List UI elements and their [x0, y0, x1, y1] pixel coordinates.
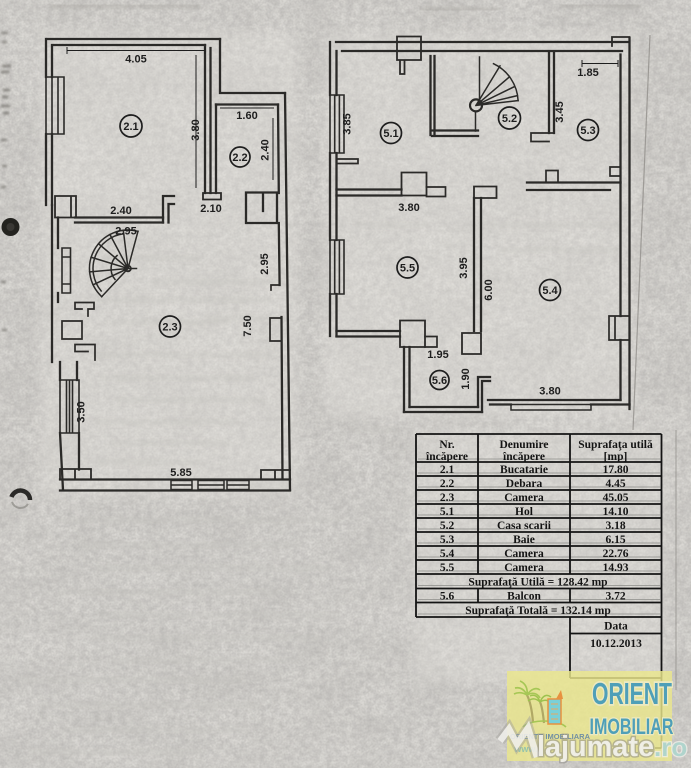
svg-text:Data: Data: [604, 621, 628, 633]
svg-text:Suprafaţă Totală = 132.14 mp: Suprafaţă Totală = 132.14 mp: [465, 605, 611, 617]
svg-text:3.85: 3.85: [342, 113, 354, 134]
svg-text:Suprafaţa utilă: Suprafaţa utilă: [578, 439, 653, 451]
svg-text:lajumate: lajumate: [537, 731, 654, 763]
svg-text:[mp]: [mp]: [604, 451, 628, 463]
svg-text:2.3: 2.3: [162, 321, 177, 333]
svg-text:14.10: 14.10: [603, 506, 629, 518]
svg-text:încăpere: încăpere: [502, 451, 545, 463]
svg-text:Bucatarie: Bucatarie: [500, 464, 548, 476]
svg-text:1.95: 1.95: [427, 349, 448, 361]
svg-text:1.60: 1.60: [236, 110, 257, 122]
svg-text:2.1: 2.1: [440, 464, 455, 476]
svg-text:3.50: 3.50: [76, 401, 88, 422]
svg-text:4.05: 4.05: [125, 54, 146, 66]
svg-text:1.90: 1.90: [460, 368, 472, 389]
svg-text:2.95: 2.95: [259, 253, 271, 274]
svg-text:3.80: 3.80: [398, 202, 419, 214]
svg-text:2.40: 2.40: [260, 139, 272, 160]
svg-text:2.2: 2.2: [440, 478, 455, 490]
svg-text:Suprafaţă Utilă = 128.42 mp: Suprafaţă Utilă = 128.42 mp: [468, 576, 607, 588]
svg-text:5.6: 5.6: [440, 590, 455, 602]
svg-text:2.1: 2.1: [123, 121, 138, 133]
svg-text:45.05: 45.05: [603, 492, 629, 504]
svg-text:Camera: Camera: [504, 548, 544, 560]
svg-text:3.80: 3.80: [190, 119, 202, 140]
svg-text:Balcon: Balcon: [507, 590, 541, 602]
svg-text:2.10: 2.10: [200, 203, 221, 215]
svg-text:Camera: Camera: [504, 492, 544, 504]
svg-text:4.45: 4.45: [605, 478, 625, 490]
svg-text:7.50: 7.50: [242, 315, 254, 336]
svg-text:Camera: Camera: [504, 562, 544, 574]
svg-text:5.2: 5.2: [502, 113, 517, 125]
svg-text:încăpere: încăpere: [425, 451, 468, 463]
svg-text:5.5: 5.5: [400, 262, 415, 274]
svg-text:5.1: 5.1: [383, 128, 398, 140]
svg-text:5.2: 5.2: [440, 520, 455, 532]
svg-text:Baie: Baie: [513, 534, 535, 546]
svg-text:17.80: 17.80: [603, 464, 629, 476]
svg-text:5.3: 5.3: [440, 534, 455, 546]
svg-text:2.40: 2.40: [110, 205, 131, 217]
svg-text:3.45: 3.45: [554, 101, 566, 122]
svg-text:Nr.: Nr.: [439, 439, 454, 451]
svg-text:Denumire: Denumire: [500, 439, 549, 451]
svg-text:1.85: 1.85: [577, 67, 598, 79]
svg-text:5.1: 5.1: [440, 506, 455, 518]
svg-text:3.80: 3.80: [539, 386, 560, 398]
svg-text:6.15: 6.15: [605, 534, 625, 546]
svg-text:ORIENT: ORIENT: [592, 676, 672, 711]
svg-text:22.76: 22.76: [603, 548, 629, 560]
svg-text:5.4: 5.4: [542, 285, 558, 297]
svg-text:10.12.2013: 10.12.2013: [590, 638, 642, 650]
svg-text:2.95: 2.95: [115, 226, 136, 238]
svg-text:Debara: Debara: [506, 478, 543, 490]
svg-text:6.00: 6.00: [483, 279, 495, 300]
svg-text:5.5: 5.5: [440, 562, 455, 574]
svg-text:3.95: 3.95: [458, 257, 470, 278]
svg-text:3.18: 3.18: [605, 520, 625, 532]
svg-text:5.6: 5.6: [432, 375, 447, 387]
svg-text:2.3: 2.3: [440, 492, 455, 504]
svg-text:5.3: 5.3: [580, 125, 595, 137]
svg-text:5.85: 5.85: [170, 467, 191, 479]
svg-text:14.93: 14.93: [603, 562, 629, 574]
svg-text:2.2: 2.2: [232, 152, 247, 164]
svg-text:5.4: 5.4: [440, 548, 455, 560]
svg-text:.ro: .ro: [654, 732, 687, 762]
svg-text:3.72: 3.72: [605, 590, 625, 602]
svg-text:Casa scarii: Casa scarii: [497, 520, 552, 532]
svg-text:Hol: Hol: [515, 506, 533, 518]
